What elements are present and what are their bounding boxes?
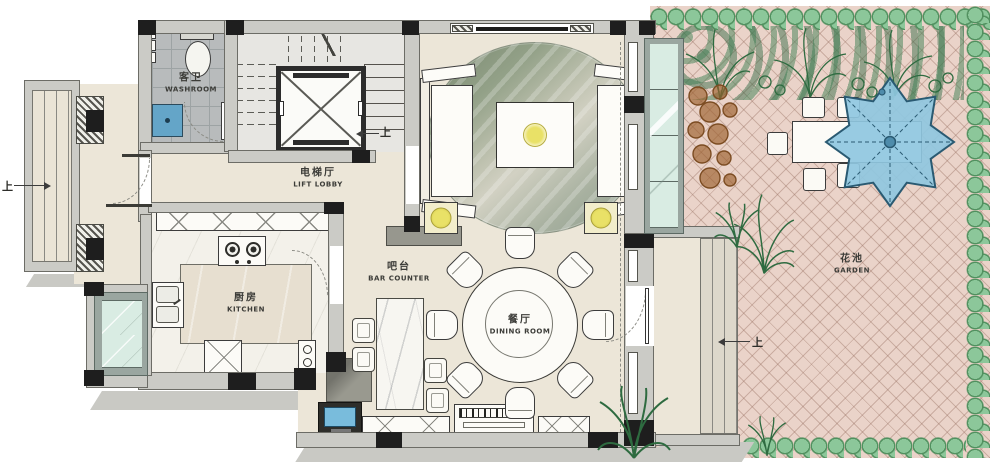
sideboard-shelf bbox=[463, 422, 525, 428]
fern-icon bbox=[708, 200, 766, 250]
label-lift-lobby-cn: 电梯厅 bbox=[293, 167, 343, 180]
porch-steps bbox=[32, 90, 72, 262]
wall-washroom-west bbox=[138, 20, 152, 156]
living-opening bbox=[406, 146, 419, 204]
elevator-guide bbox=[279, 101, 284, 116]
fern-icon bbox=[742, 414, 792, 458]
label-washroom-en: WASHROOM bbox=[165, 85, 217, 94]
stove-knob bbox=[247, 260, 251, 264]
label-garden: 花池 GARDEN bbox=[834, 253, 870, 274]
label-dining-room-en: DINING ROOM bbox=[490, 327, 551, 336]
garden-chair bbox=[767, 132, 788, 155]
ceiling-break-line bbox=[620, 42, 621, 432]
label-bar-counter: 吧台 BAR COUNTER bbox=[368, 261, 430, 282]
label-lift-lobby-en: LIFT LOBBY bbox=[293, 180, 343, 189]
tv bbox=[318, 402, 362, 434]
brown-shrub-icon bbox=[682, 84, 746, 194]
entry-direction-arrow bbox=[14, 185, 44, 186]
burner-icon bbox=[303, 345, 312, 354]
stair-flight-dashed bbox=[236, 64, 278, 128]
column-block bbox=[86, 238, 104, 260]
window-bar bbox=[476, 27, 568, 31]
elevator-rail bbox=[293, 140, 349, 145]
sofa-back bbox=[420, 78, 430, 204]
column-block bbox=[404, 216, 420, 232]
label-dining-room: 餐厅 DINING ROOM bbox=[490, 314, 551, 335]
passage-steps bbox=[700, 238, 738, 434]
bar-stool bbox=[352, 318, 375, 343]
table-light bbox=[523, 123, 547, 147]
floor-plan: 上 上 bbox=[0, 0, 1005, 475]
label-garden-en: GARDEN bbox=[834, 266, 870, 275]
kitchen-wall-cabinets bbox=[156, 211, 330, 231]
column-block bbox=[294, 368, 316, 390]
up-label-stairs: 上 bbox=[380, 124, 391, 140]
stove-knob bbox=[235, 260, 239, 264]
bar-counter bbox=[376, 298, 424, 410]
label-bar-counter-cn: 吧台 bbox=[368, 261, 430, 274]
parasol-icon bbox=[824, 76, 956, 208]
wall-kitchen-north bbox=[148, 202, 344, 213]
arrow-head bbox=[718, 338, 725, 346]
bar-stool bbox=[426, 388, 449, 413]
sunroom-glass bbox=[650, 44, 678, 228]
label-dining-room-cn: 餐厅 bbox=[490, 314, 551, 327]
sofa-left bbox=[420, 70, 478, 212]
label-kitchen: 厨房 KITCHEN bbox=[227, 292, 265, 313]
floor-lamp bbox=[424, 202, 458, 234]
hedge-top bbox=[650, 6, 990, 30]
label-bar-counter-en: BAR COUNTER bbox=[368, 274, 430, 283]
bar-stool bbox=[352, 347, 375, 372]
column-block bbox=[226, 20, 244, 35]
column-block bbox=[326, 352, 346, 372]
dining-chair bbox=[505, 227, 535, 259]
column-block bbox=[324, 202, 344, 214]
label-garden-cn: 花池 bbox=[834, 253, 870, 266]
garden-door-leaf bbox=[645, 288, 649, 344]
label-kitchen-cn: 厨房 bbox=[227, 292, 265, 305]
label-washroom-cn: 客卫 bbox=[165, 72, 217, 85]
garden-chair bbox=[803, 168, 826, 191]
column-block bbox=[376, 432, 402, 448]
bar-stool bbox=[424, 358, 447, 383]
window-slot bbox=[628, 42, 638, 92]
column-block bbox=[624, 234, 654, 248]
tv-screen bbox=[324, 407, 356, 427]
garden-direction-arrow bbox=[724, 341, 750, 342]
burner-icon bbox=[303, 358, 312, 367]
kitchen-sink-icon bbox=[152, 282, 184, 328]
elevator-shaft bbox=[276, 66, 366, 152]
column-block bbox=[86, 110, 104, 132]
stove-icon bbox=[218, 236, 266, 266]
column-block bbox=[84, 370, 104, 386]
column-block bbox=[138, 20, 156, 35]
fern-icon bbox=[592, 382, 676, 462]
window-slot bbox=[628, 250, 638, 282]
burner-icon bbox=[225, 242, 240, 257]
bay-window-glass bbox=[102, 300, 142, 368]
kitchen-counter-sink bbox=[204, 340, 242, 373]
wall-washroom-south bbox=[140, 142, 236, 154]
dining-chair bbox=[505, 387, 535, 419]
window-slot bbox=[628, 124, 638, 190]
up-label-entry: 上 bbox=[2, 178, 13, 194]
label-washroom: 客卫 WASHROOM bbox=[165, 72, 217, 93]
column-block bbox=[610, 21, 626, 35]
burner-icon bbox=[246, 242, 261, 257]
kitchen-door-gap bbox=[330, 246, 343, 304]
stair-direction-arrow bbox=[362, 133, 379, 134]
window-sill-hatch bbox=[452, 25, 473, 32]
arrow-head bbox=[356, 130, 363, 138]
coffee-table bbox=[496, 102, 574, 168]
label-kitchen-en: KITCHEN bbox=[227, 305, 265, 314]
column-block bbox=[84, 282, 104, 296]
floor-lamp bbox=[584, 202, 618, 234]
elevator-rail bbox=[293, 73, 349, 78]
entry-door-leaf bbox=[122, 154, 150, 157]
window-sill-hatch bbox=[570, 25, 591, 32]
up-label-garden: 上 bbox=[752, 334, 763, 350]
column-block bbox=[228, 373, 256, 390]
dining-chair bbox=[426, 310, 458, 340]
wall-kitchen-south bbox=[138, 372, 302, 390]
garden-chair bbox=[802, 97, 825, 118]
basin-drain bbox=[165, 118, 170, 123]
entry-door-leaf bbox=[106, 204, 152, 207]
column-block bbox=[639, 21, 655, 35]
column-block bbox=[352, 150, 370, 163]
wall-washroom-east bbox=[224, 20, 238, 152]
sofa-seat bbox=[431, 85, 473, 197]
label-lift-lobby: 电梯厅 LIFT LOBBY bbox=[293, 167, 343, 188]
arrow-head bbox=[44, 182, 51, 190]
hedge-right bbox=[963, 6, 990, 458]
elevator-guide bbox=[358, 101, 363, 116]
column-block bbox=[402, 21, 419, 35]
sink-basin bbox=[156, 306, 179, 323]
